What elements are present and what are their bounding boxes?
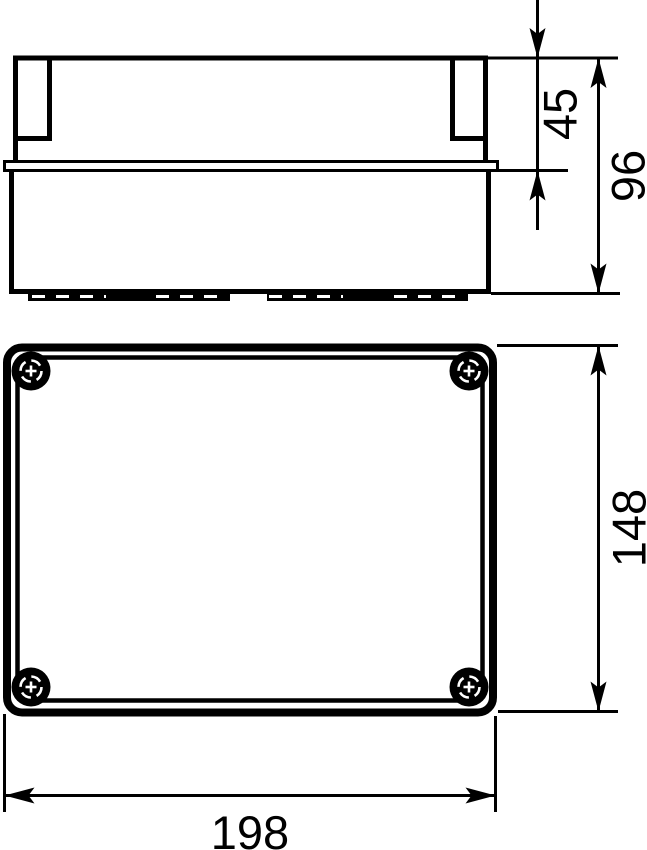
- dim-label-width: 198: [211, 806, 289, 850]
- cover-outline: [7, 348, 493, 713]
- lid-flange: [5, 162, 498, 171]
- screw-bottom-right: [450, 668, 489, 707]
- top-view: [7, 348, 493, 713]
- dim-label-lid-height: 45: [534, 88, 587, 140]
- technical-drawing: 45 96 148 198: [0, 0, 647, 850]
- side-view: [5, 56, 498, 302]
- screw-top-right: [450, 352, 489, 391]
- screw-top-left: [12, 352, 51, 391]
- dim-label-total-height: 96: [602, 150, 647, 202]
- dim-label-depth: 148: [603, 489, 647, 567]
- screw-bottom-left: [12, 668, 51, 707]
